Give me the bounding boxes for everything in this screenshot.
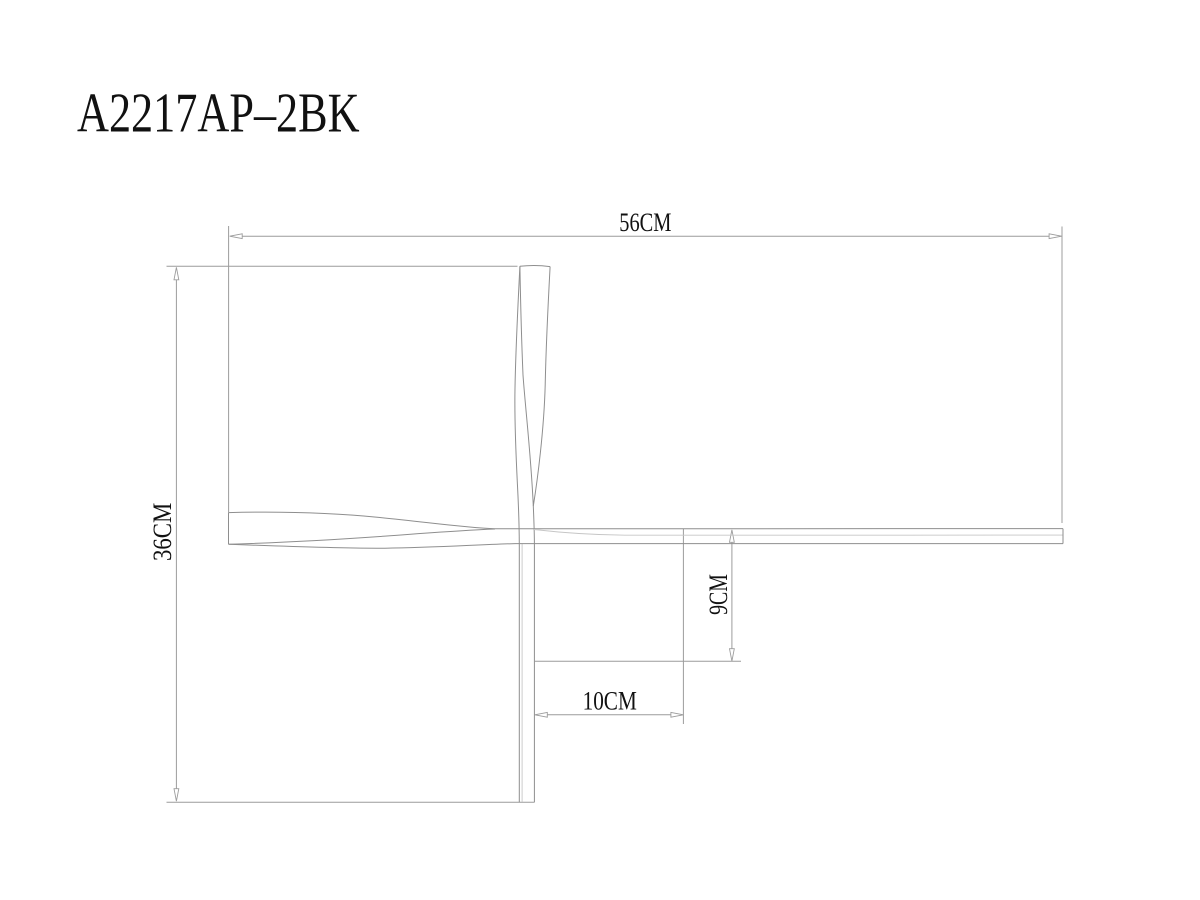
svg-text:A2217AP–2BK: A2217AP–2BK xyxy=(77,82,360,144)
svg-text:56CM: 56CM xyxy=(619,209,671,238)
svg-text:10CM: 10CM xyxy=(583,687,637,716)
svg-text:9CM: 9CM xyxy=(704,574,733,615)
svg-text:36CM: 36CM xyxy=(148,503,177,561)
